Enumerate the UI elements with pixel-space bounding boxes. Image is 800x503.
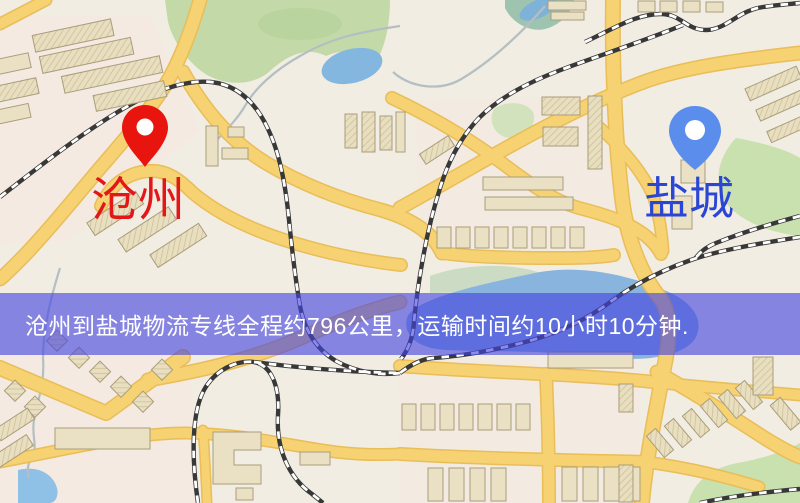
route-info-banner: 沧州到盐城物流专线全程约796公里，运输时间约10小时10分钟. [0, 293, 800, 355]
origin-city-label: 沧州 [91, 178, 185, 225]
route-info-text: 沧州到盐城物流专线全程约796公里，运输时间约10小时10分钟. [25, 307, 689, 341]
origin-pin-shape [122, 105, 168, 167]
map-view: 沧州 盐城 沧州到盐城物流专线全程约796公里，运输时间约10小时10分钟. [0, 0, 800, 503]
map-image [0, 0, 800, 503]
destination-pin-icon [669, 106, 721, 175]
origin-pin-icon [122, 105, 168, 172]
destination-city-label: 盐城 [644, 177, 734, 222]
